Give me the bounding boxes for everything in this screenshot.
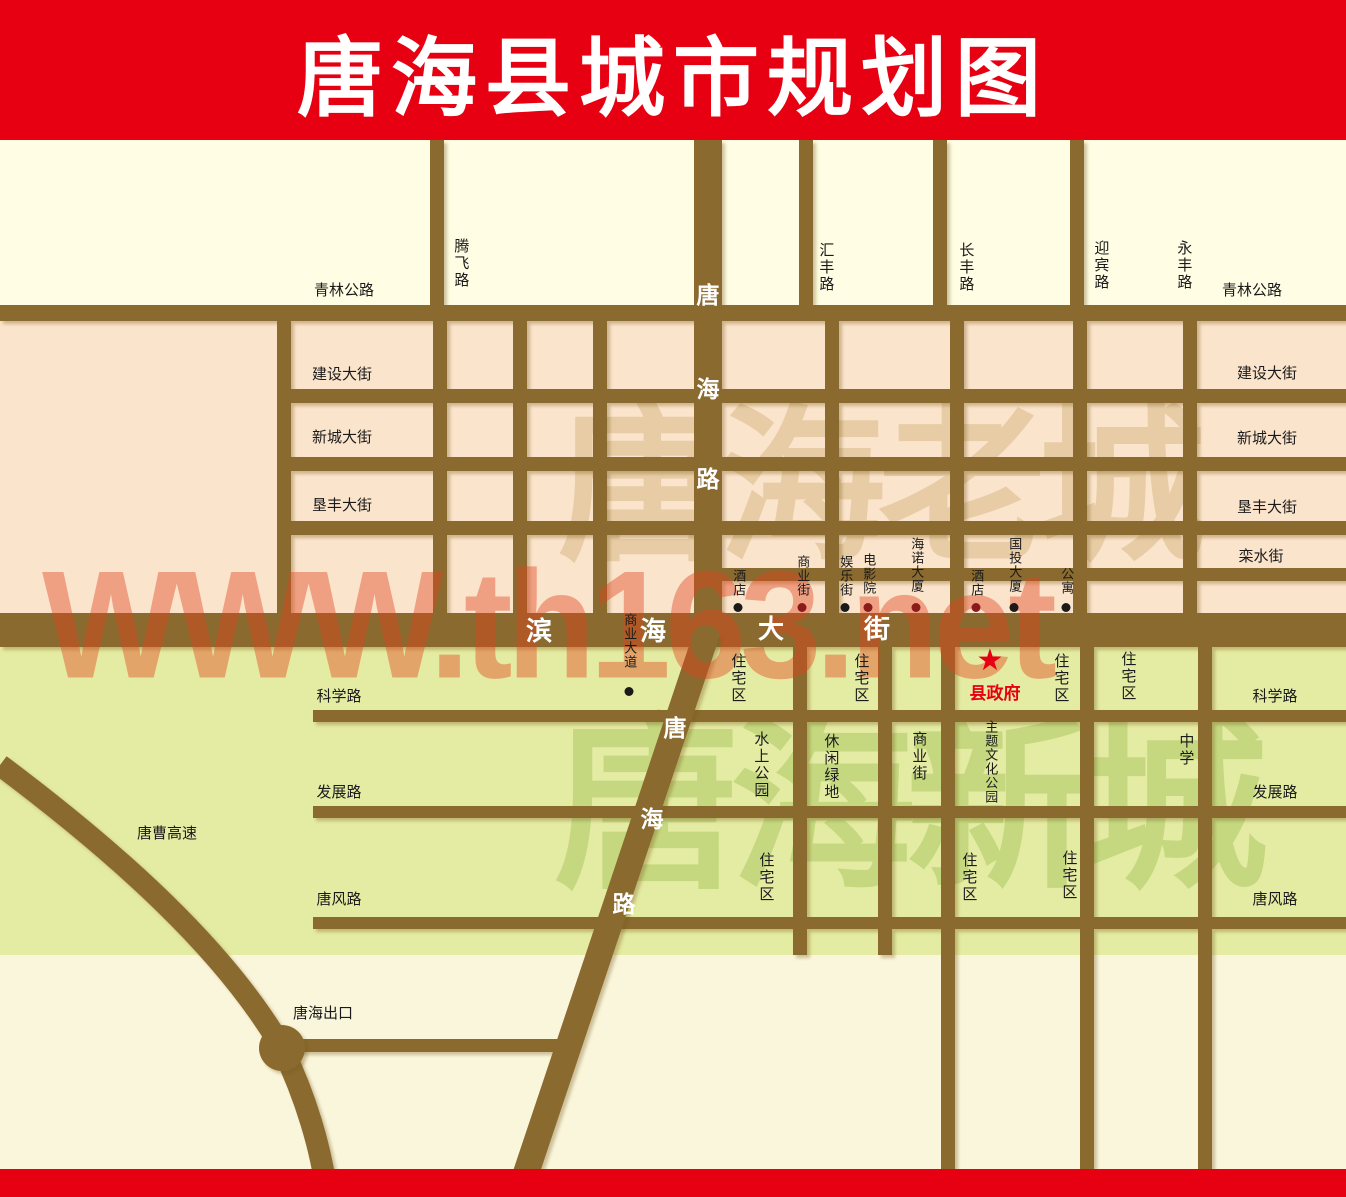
- kexue-road-label-right: 科学路: [1252, 689, 1297, 706]
- yingbin-road-label: 迎宾路: [1092, 240, 1109, 291]
- tanghai-road-char-hai: 海: [697, 377, 720, 403]
- residential-label: 住宅区: [1060, 850, 1077, 901]
- poi-cinema-dot-icon: [864, 603, 873, 612]
- binhai-street-char-bin: 滨: [526, 617, 552, 646]
- tangcao-highway-label: 唐曹高速: [137, 826, 197, 843]
- poi-shangye-street-dot-icon: [798, 603, 807, 612]
- tanghai-diagonal-char-lu: 路: [613, 892, 636, 918]
- yongfeng-road-label: 永丰路: [1175, 240, 1192, 291]
- binhai-street-char-da: 大: [758, 615, 784, 644]
- residential-label: 住宅区: [1119, 651, 1136, 702]
- county-government-star-icon: ★: [977, 646, 1004, 676]
- binhai-street-char-jie: 街: [864, 615, 890, 644]
- tangfeng-road-label-right: 唐风路: [1252, 892, 1297, 909]
- qinglin-road-label-left: 青林公路: [314, 283, 374, 300]
- theme-culture-park-label: 主题文化公园: [983, 720, 998, 804]
- xincheng-street-label-left: 新城大街: [312, 430, 372, 447]
- kenfeng-street-label-right: 垦丰大街: [1237, 500, 1297, 517]
- poi-hotel-east: 酒店: [969, 569, 984, 597]
- kenfeng-street-label-left: 垦丰大街: [312, 498, 372, 515]
- poi-apartment: 公寓: [1059, 567, 1074, 595]
- tanghai-exit-label: 唐海出口: [293, 1006, 353, 1023]
- shangye-street-south-label: 商业街: [910, 731, 927, 782]
- poi-shangye-avenue: 商业大道: [622, 613, 637, 669]
- poi-guotou-tower: 国投大厦: [1007, 537, 1022, 593]
- huifeng-road-label: 汇丰路: [817, 242, 834, 293]
- residential-label: 住宅区: [852, 653, 869, 704]
- kexue-road-label-left: 科学路: [316, 689, 361, 706]
- tanghai-road-char-tang: 唐: [697, 283, 720, 309]
- changfeng-road-label: 长丰路: [957, 242, 974, 293]
- tanghai-road-char-lu: 路: [697, 467, 720, 493]
- poi-guotou-tower-dot-icon: [1010, 603, 1019, 612]
- qinglin-road-label-right: 青林公路: [1222, 283, 1282, 300]
- luanshui-street-label: 栾水街: [1238, 549, 1283, 566]
- middle-school-label: 中学: [1177, 733, 1194, 767]
- poi-shangye-avenue-dot-icon: [625, 687, 634, 696]
- poi-hainuo-tower-dot-icon: [912, 603, 921, 612]
- residential-label: 住宅区: [960, 852, 977, 903]
- poi-hainuo-tower: 海诺大厦: [909, 537, 924, 593]
- poi-cinema: 电影院: [861, 553, 876, 595]
- poi-hotel-west: 酒店: [731, 569, 746, 597]
- county-government-label: 县政府: [970, 679, 1021, 704]
- poi-hotel-west-dot-icon: [734, 603, 743, 612]
- tangfeng-road-label-left: 唐风路: [316, 892, 361, 909]
- fazhan-road-label-right: 发展路: [1252, 785, 1297, 802]
- xiuxian-green-label: 休闲绿地: [822, 733, 839, 801]
- jianshe-street-label-right: 建设大街: [1237, 366, 1297, 383]
- xincheng-street-label-right: 新城大街: [1237, 431, 1297, 448]
- poi-yule-street: 娱乐街: [838, 555, 853, 597]
- poi-apartment-dot-icon: [1062, 603, 1071, 612]
- tengfei-road-label: 腾飞路: [452, 238, 469, 289]
- poi-yule-street-dot-icon: [841, 603, 850, 612]
- map-labels-layer: ★ 县政府 青林公路青林公路腾飞路汇丰路长丰路迎宾路永丰路唐海路建设大街新城大街…: [0, 0, 1346, 1197]
- shuishang-park-label: 水上公园: [752, 731, 769, 799]
- footer-bar: [0, 1169, 1346, 1197]
- planning-map-page: 唐海老城 唐海新城: [0, 0, 1346, 1197]
- poi-shangye-street: 商业街: [795, 555, 810, 597]
- residential-label: 住宅区: [1052, 653, 1069, 704]
- residential-label: 住宅区: [729, 653, 746, 704]
- binhai-street-char-hai: 海: [640, 617, 666, 646]
- poi-hotel-east-dot-icon: [972, 603, 981, 612]
- tanghai-diagonal-char-tang: 唐: [664, 716, 687, 742]
- tanghai-diagonal-char-hai: 海: [641, 807, 664, 833]
- residential-label: 住宅区: [757, 852, 774, 903]
- fazhan-road-label-left: 发展路: [316, 785, 361, 802]
- jianshe-street-label-left: 建设大街: [312, 367, 372, 384]
